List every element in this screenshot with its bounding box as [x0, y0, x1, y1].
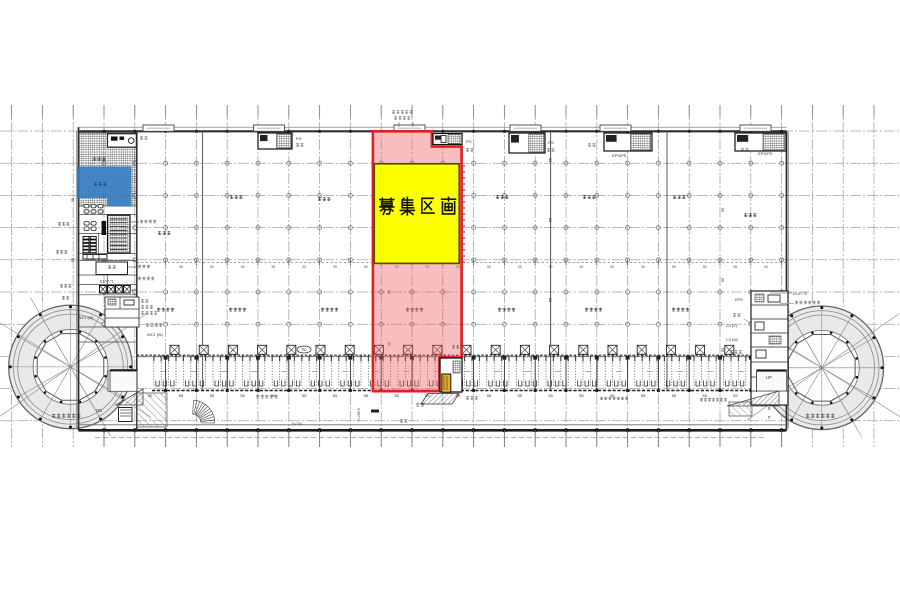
svg-text:55: 55 — [641, 265, 645, 269]
svg-text:55: 55 — [672, 265, 676, 269]
svg-text:55: 55 — [394, 393, 399, 398]
svg-text:C3 (V): C3 (V) — [726, 324, 738, 328]
svg-text:55: 55 — [548, 297, 553, 302]
svg-text:Y=296.5: Y=296.5 — [357, 408, 361, 422]
svg-text:55: 55 — [610, 393, 615, 398]
svg-text:F: F — [768, 415, 771, 420]
svg-text:S=700: S=700 — [292, 422, 303, 426]
svg-text:WC1 (M): WC1 (M) — [78, 316, 94, 320]
svg-text:C3 (W): C3 (W) — [726, 338, 739, 342]
svg-text:55: 55 — [720, 207, 725, 212]
svg-text:-PS: -PS — [465, 139, 472, 144]
svg-text:ELV*-*1: ELV*-*1 — [100, 279, 115, 284]
svg-text:55: 55 — [518, 265, 522, 269]
svg-text:55: 55 — [610, 265, 614, 269]
svg-text:55: 55 — [720, 277, 725, 282]
svg-text:55: 55 — [672, 393, 677, 398]
svg-text:55: 55 — [272, 265, 276, 269]
svg-text:55: 55 — [580, 265, 584, 269]
svg-text:-WC1 (W): -WC1 (W) — [146, 333, 164, 337]
svg-text:-PS: -PS — [547, 140, 554, 145]
svg-text:55: 55 — [179, 393, 184, 398]
svg-text:55: 55 — [548, 217, 553, 222]
svg-text:55: 55 — [548, 157, 553, 162]
svg-text:55: 55 — [703, 265, 707, 269]
svg-text:55: 55 — [333, 265, 337, 269]
svg-text:PS: PS — [132, 289, 138, 293]
svg-text:55: 55 — [579, 393, 584, 398]
svg-text:55: 55 — [720, 347, 725, 352]
svg-text:55: 55 — [764, 265, 768, 269]
svg-text:55: 55 — [179, 265, 183, 269]
svg-text:PS: PS — [296, 136, 302, 141]
svg-text:UP: UP — [766, 375, 772, 380]
svg-text:55: 55 — [364, 265, 368, 269]
svg-text:DN: DN — [96, 408, 102, 413]
svg-text:55: 55 — [70, 257, 75, 262]
svg-text:55: 55 — [333, 393, 338, 398]
svg-text:55: 55 — [70, 197, 75, 202]
svg-text:55: 55 — [302, 265, 306, 269]
svg-text:55: 55 — [548, 393, 553, 398]
svg-text:55: 55 — [518, 393, 523, 398]
svg-text:55: 55 — [210, 393, 215, 398]
svg-text:55: 55 — [210, 265, 214, 269]
svg-text:55: 55 — [549, 265, 553, 269]
svg-text:55: 55 — [241, 265, 245, 269]
svg-text:55: 55 — [702, 393, 707, 398]
svg-text:55: 55 — [734, 265, 738, 269]
svg-text:55: 55 — [733, 393, 738, 398]
svg-text:EPS/PS: EPS/PS — [612, 153, 627, 158]
svg-text:55: 55 — [487, 265, 491, 269]
svg-text:55: 55 — [641, 393, 646, 398]
svg-text:RD: RD — [301, 348, 307, 352]
svg-text:EPS/PS: EPS/PS — [758, 151, 773, 156]
svg-text:55: 55 — [364, 393, 369, 398]
svg-text:55: 55 — [487, 393, 492, 398]
svg-text:55: 55 — [240, 393, 245, 398]
svg-text:ELV*-*2: ELV*-*2 — [793, 291, 808, 296]
svg-text:55: 55 — [302, 393, 307, 398]
svg-text:EPS: EPS — [735, 298, 743, 302]
